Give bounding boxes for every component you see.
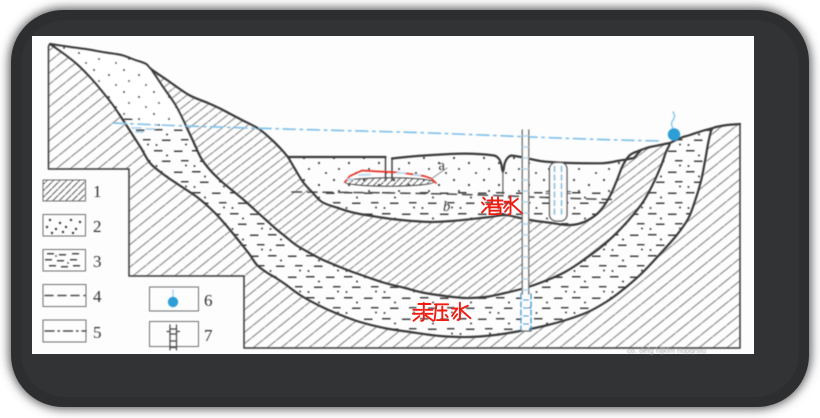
svg-text:co. defg hijklm nopqrstu: co. defg hijklm nopqrstu (627, 346, 706, 355)
svg-text:b: b (443, 199, 450, 215)
svg-text:a: a (439, 158, 446, 174)
svg-text:6: 6 (204, 291, 213, 310)
svg-text:3: 3 (93, 252, 102, 271)
svg-text:7: 7 (204, 326, 213, 345)
svg-text:4: 4 (93, 287, 102, 306)
svg-text:1: 1 (93, 182, 102, 201)
svg-text:5: 5 (93, 323, 102, 342)
svg-text:2: 2 (93, 217, 102, 236)
